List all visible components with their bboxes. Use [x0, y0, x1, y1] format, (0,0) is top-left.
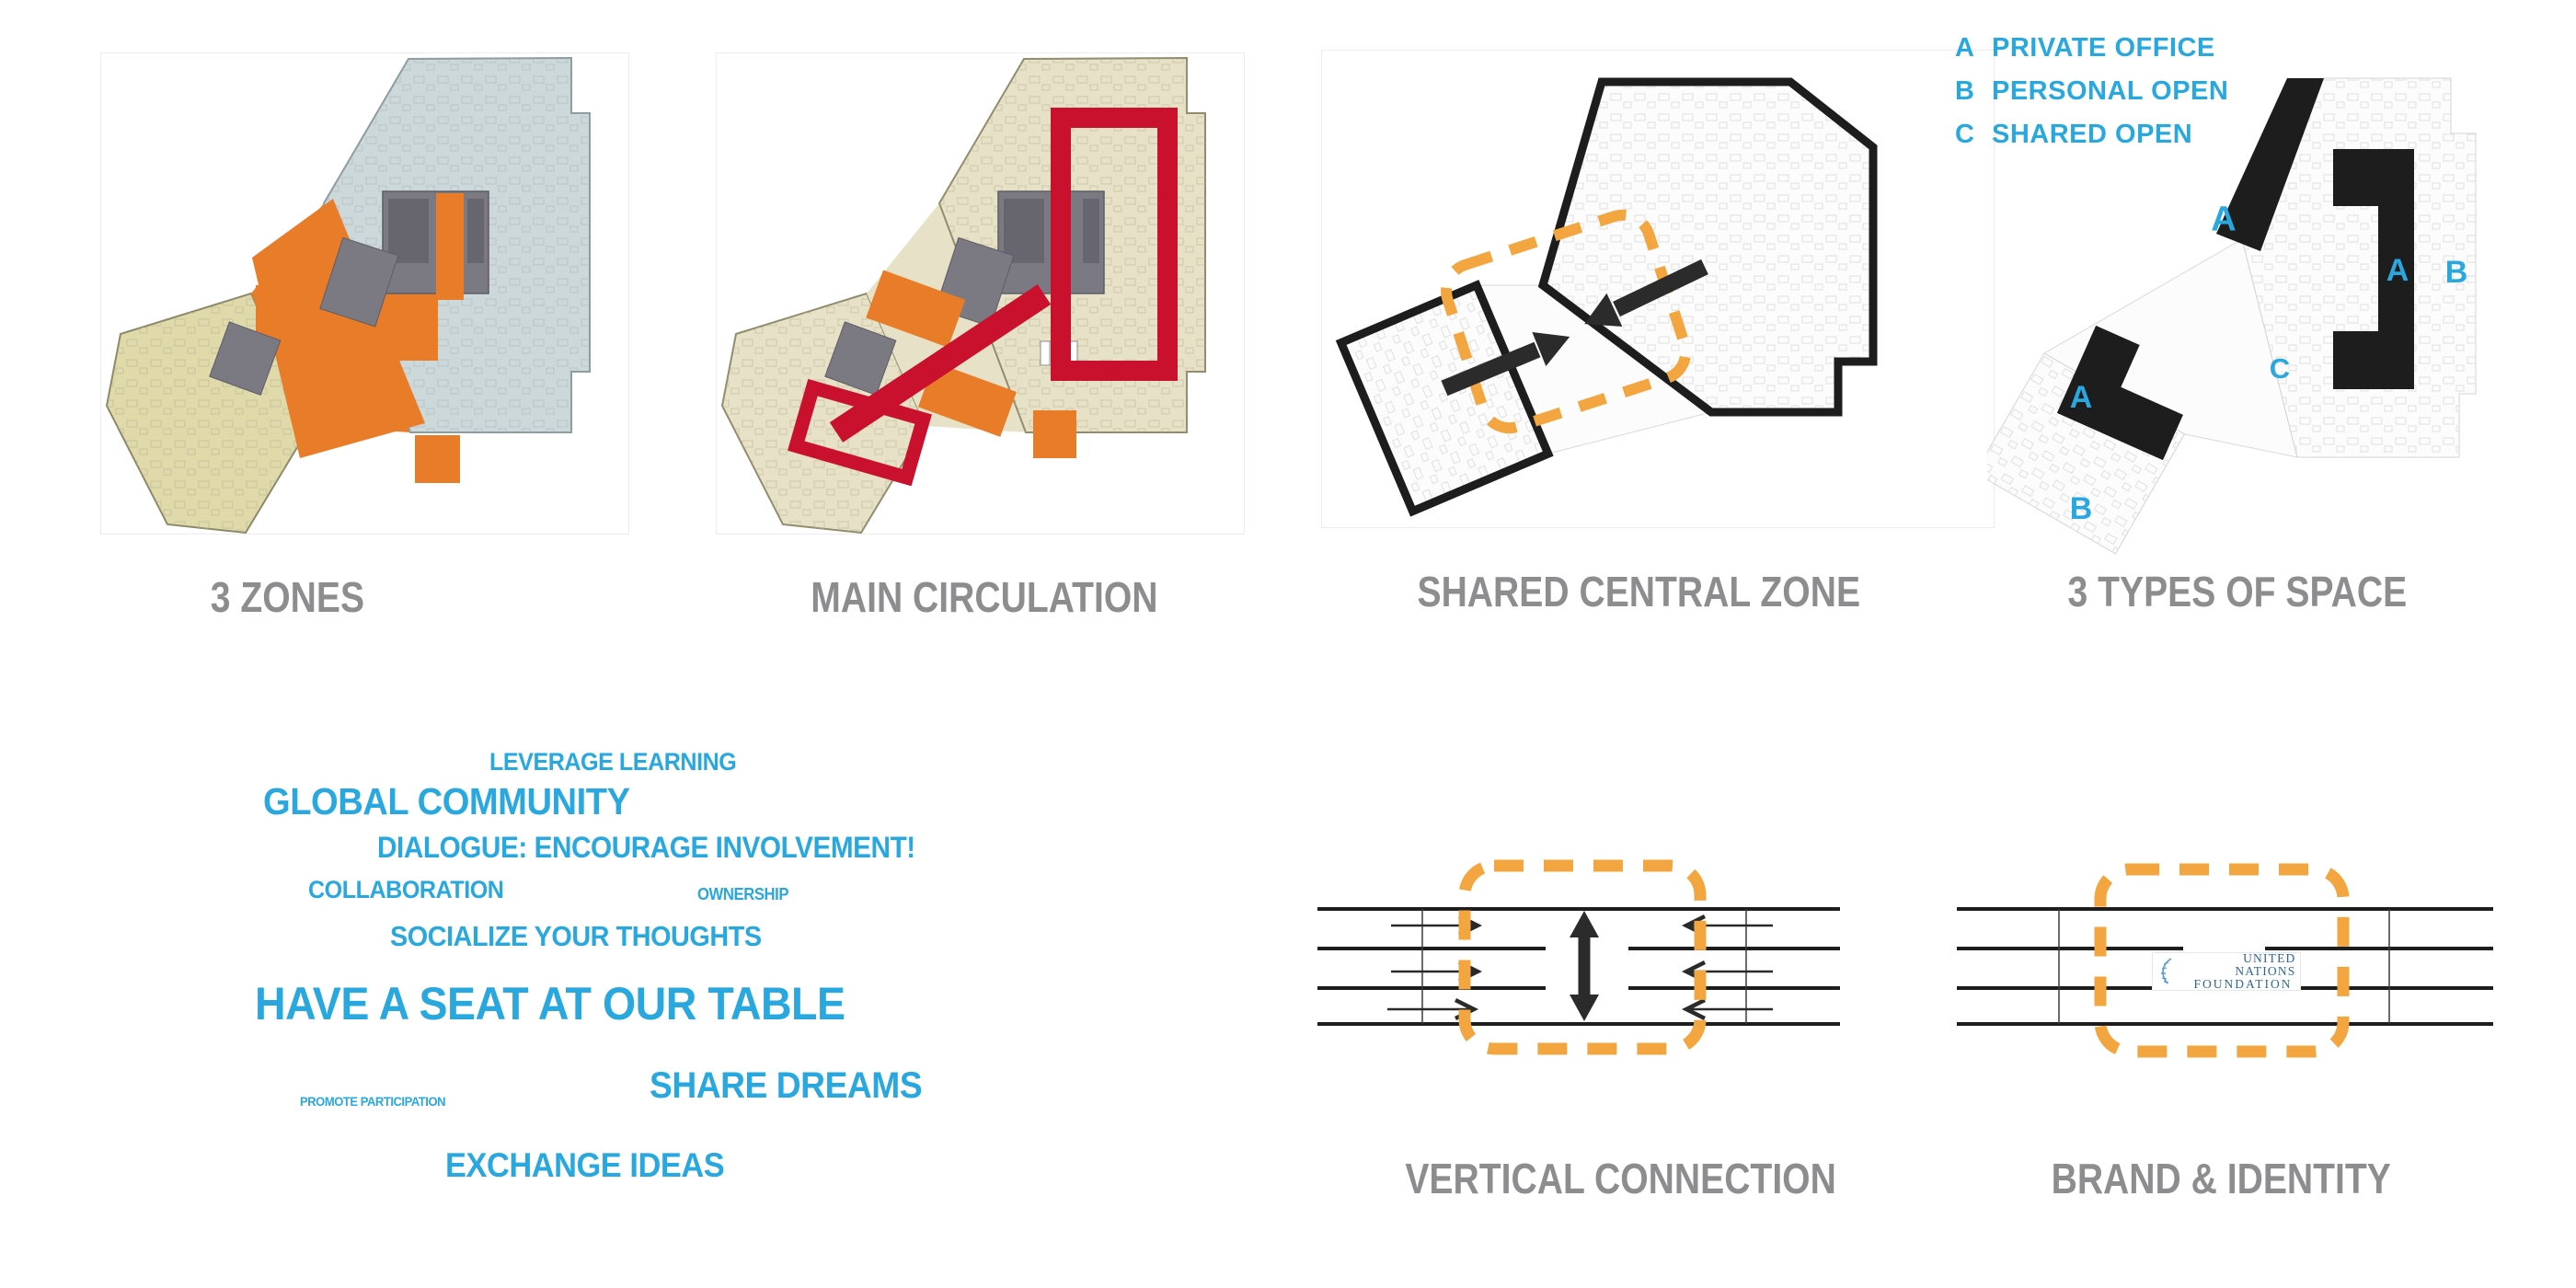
logo-line-1: UNITED NATIONS — [2179, 952, 2296, 978]
legend-item-b: BPERSONAL OPEN — [1955, 76, 2228, 120]
space-type-marker-a: A — [2211, 200, 2236, 238]
word-cloud-term: SHARE DREAMS — [650, 1067, 922, 1104]
space-type-marker-a: A — [2070, 380, 2093, 415]
label-shared-central-zone: SHARED CENTRAL ZONE — [1378, 567, 1857, 616]
floor-plan-main-circulation — [717, 53, 1244, 534]
legend-key: A — [1955, 33, 1992, 63]
vertical-connection-diagram — [1306, 856, 1858, 1067]
word-cloud-term: COLLABORATION — [308, 878, 503, 903]
space-type-marker-b: B — [2445, 255, 2468, 290]
word-cloud-term: SOCIALIZE YOUR THOUGHTS — [390, 922, 762, 950]
legend-label: PRIVATE OFFICE — [1992, 33, 2215, 63]
label-vertical-connection: VERTICAL CONNECTION — [1367, 1154, 1846, 1203]
word-cloud-term: DIALOGUE: ENCOURAGE INVOLVEMENT! — [377, 833, 915, 862]
un-foundation-logo: UNITED NATIONS FOUNDATION — [2152, 952, 2301, 991]
space-type-marker-a: A — [2386, 253, 2409, 288]
label-3-zones: 3 ZONES — [48, 572, 526, 622]
logo-line-2: FOUNDATION — [2179, 978, 2296, 991]
label-3-types-of-space: 3 TYPES OF SPACE — [1998, 567, 2477, 616]
space-type-marker-b: B — [2070, 491, 2093, 526]
legend-item-c: CSHARED OPEN — [1955, 120, 2228, 163]
legend-label: SHARED OPEN — [1992, 120, 2192, 150]
floor-plan-3-zones — [101, 53, 628, 534]
label-main-circulation: MAIN CIRCULATION — [745, 572, 1224, 622]
legend-key: B — [1955, 76, 1992, 107]
word-cloud-term: OWNERSHIP — [697, 886, 788, 903]
label-brand-identity: BRAND & IDENTITY — [1982, 1154, 2460, 1203]
legend-key: C — [1955, 120, 1992, 150]
concept-diagram-sheet: AABCAB APRIVATE OFFICEBPERSONAL OPENCSHA… — [0, 0, 2576, 1288]
space-type-marker-c: C — [2270, 352, 2290, 385]
word-cloud-term: PROMOTE PARTICIPATION — [300, 1095, 445, 1108]
vertical-double-arrow — [1570, 911, 1599, 1021]
floor-plan-shared-central-zone — [1322, 51, 1994, 527]
word-cloud-term: GLOBAL COMMUNITY — [263, 783, 630, 821]
word-cloud-term: HAVE A SEAT AT OUR TABLE — [255, 981, 845, 1027]
legend-label: PERSONAL OPEN — [1992, 76, 2228, 107]
legend-item-a: APRIVATE OFFICE — [1955, 33, 2228, 76]
space-type-legend: APRIVATE OFFICEBPERSONAL OPENCSHARED OPE… — [1955, 33, 2228, 163]
word-cloud-term: EXCHANGE IDEAS — [445, 1148, 724, 1182]
laurel-branch-icon — [2157, 957, 2176, 986]
word-cloud-term: LEVERAGE LEARNING — [489, 750, 736, 775]
